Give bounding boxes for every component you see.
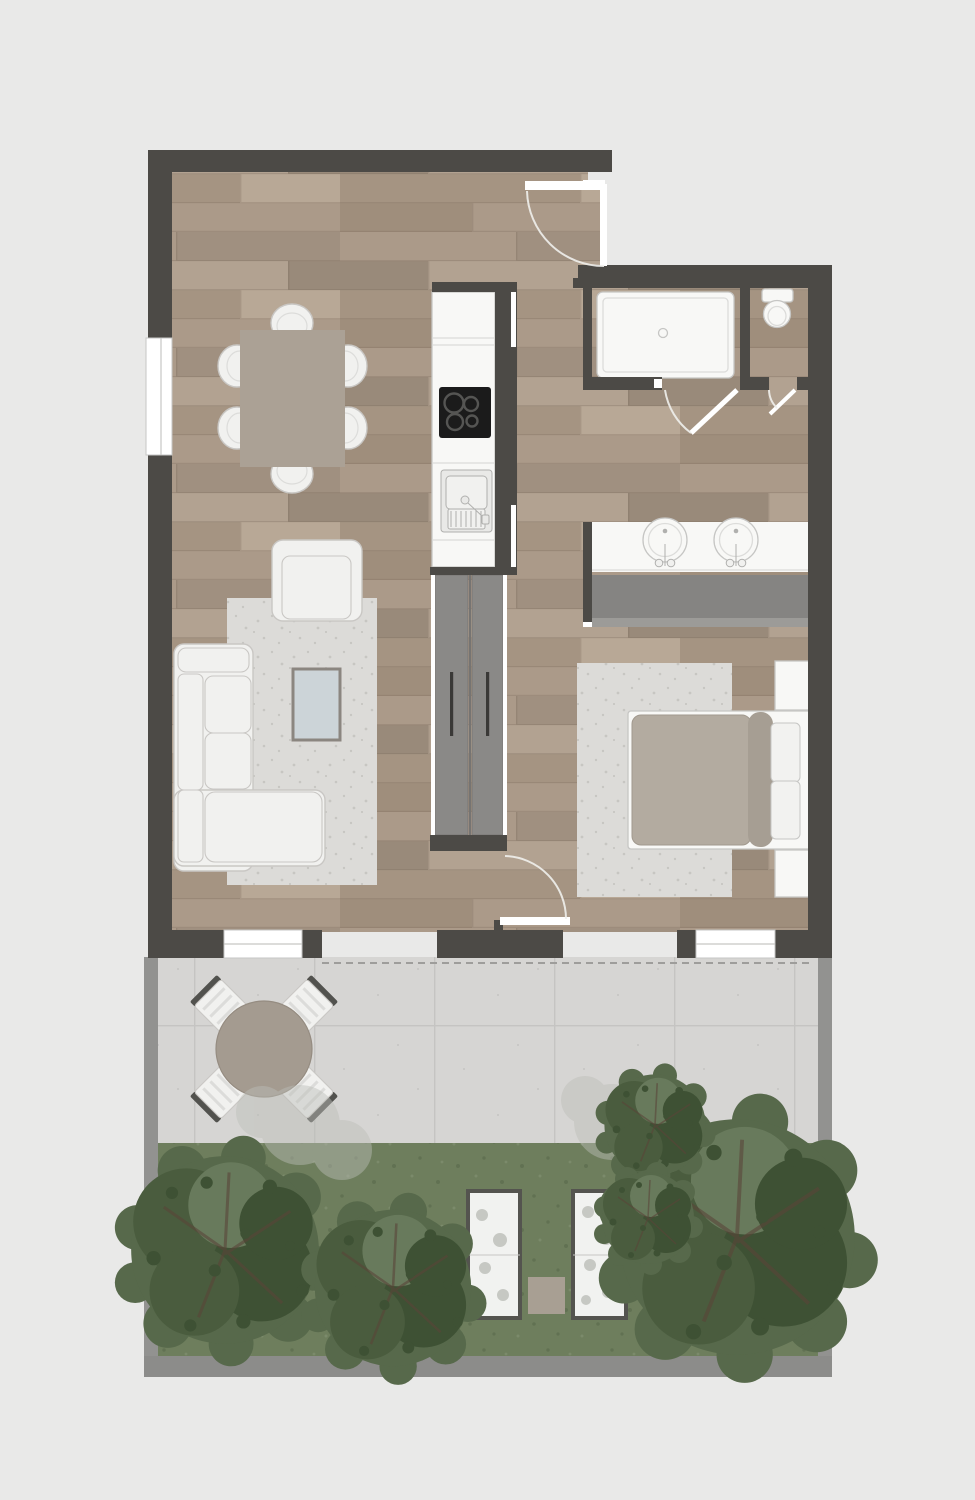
window-left xyxy=(146,338,172,455)
wall-wc-bottom xyxy=(750,377,769,390)
wall-bathroom-top xyxy=(578,265,832,288)
wall-notch xyxy=(573,278,583,288)
kitchen-sink xyxy=(441,470,492,532)
floor-plan-canvas xyxy=(0,0,975,1500)
shower xyxy=(597,292,734,378)
bed-duvet xyxy=(632,715,751,845)
coffee-table xyxy=(293,669,340,740)
bed xyxy=(628,711,813,849)
wall-counter-cap xyxy=(432,282,495,292)
wall-vanity-divider xyxy=(583,522,592,627)
bed-bolster xyxy=(748,712,773,847)
toilet xyxy=(762,289,793,328)
bed-pillow xyxy=(771,723,800,782)
entry-door-leaf xyxy=(600,184,607,266)
wall-left-lower xyxy=(148,455,172,932)
wall-bottom xyxy=(302,930,322,958)
floor-plan-page xyxy=(0,0,975,1500)
nightstand xyxy=(775,661,812,710)
wall-bottom xyxy=(437,930,563,958)
door-jamb xyxy=(654,379,662,388)
wall-top xyxy=(148,150,612,172)
window-terrace-left xyxy=(224,930,302,958)
bedroom xyxy=(577,661,813,897)
shower-drain-icon xyxy=(659,329,668,338)
wall-bottom xyxy=(148,930,224,958)
door-jamb xyxy=(583,622,592,627)
wardrobe-edge xyxy=(431,575,435,835)
wall-wardrobe-cap-top xyxy=(430,567,517,575)
nightstand xyxy=(775,850,812,897)
terrace-table xyxy=(216,1001,312,1097)
wall-shower-bottom xyxy=(583,377,662,390)
cooktop xyxy=(439,387,491,438)
wardrobe-handle-icon xyxy=(450,672,453,736)
bed-pillow xyxy=(771,781,800,839)
wall-right xyxy=(808,288,832,958)
bedroom-closet xyxy=(592,575,808,627)
wardrobe-handle-icon xyxy=(486,672,489,736)
door-jamb xyxy=(511,505,516,567)
vanity xyxy=(592,518,808,572)
wall-wc-bottom xyxy=(797,377,808,390)
door-jamb xyxy=(511,292,516,347)
armchair xyxy=(272,540,362,621)
faucet-icon xyxy=(461,496,469,504)
stepping-pad xyxy=(528,1277,565,1314)
dining-table xyxy=(240,330,345,467)
wardrobe-edge xyxy=(503,575,507,835)
wall-bathroom-left xyxy=(583,288,592,385)
wall-bottom xyxy=(677,930,696,958)
window-terrace-right xyxy=(696,930,775,958)
wall-left-upper xyxy=(148,172,172,338)
wall-wardrobe-cap-bottom xyxy=(430,835,507,851)
sliding-door-leaf xyxy=(500,917,570,925)
wall-wc-divider xyxy=(740,288,750,390)
kitchen xyxy=(432,292,495,567)
hallway-wardrobe xyxy=(435,575,503,835)
